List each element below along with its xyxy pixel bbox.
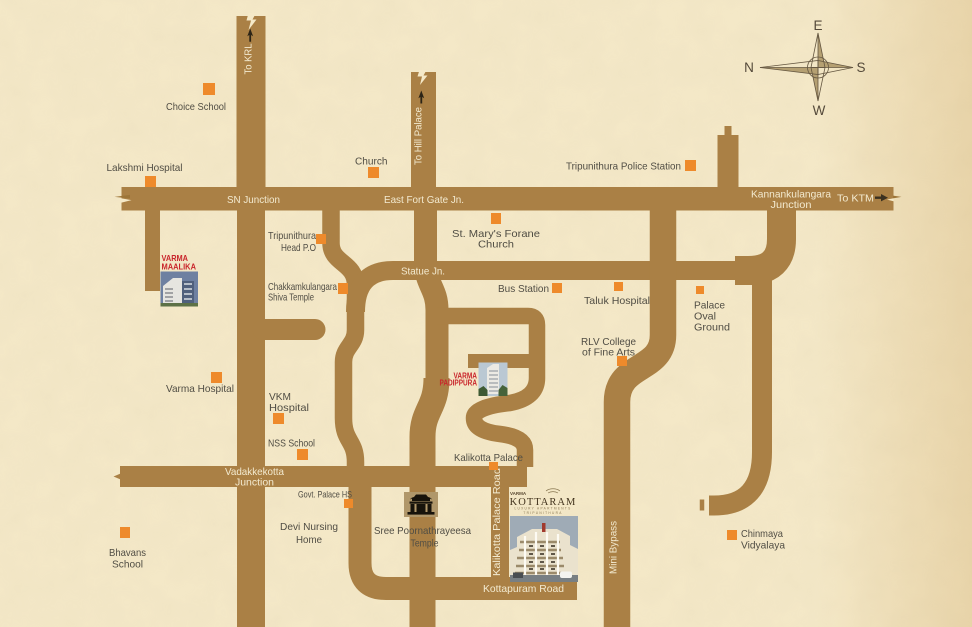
svg-text:Kalikotta Palace Road: Kalikotta Palace Road <box>491 468 503 576</box>
svg-text:Home: Home <box>296 534 322 546</box>
svg-text:Taluk Hospital: Taluk Hospital <box>584 295 650 307</box>
svg-text:of Fine Arts: of Fine Arts <box>582 347 635 359</box>
svg-text:Junction: Junction <box>235 477 274 489</box>
svg-text:Vidyalaya: Vidyalaya <box>741 540 785 552</box>
svg-text:Choice School: Choice School <box>166 101 226 113</box>
svg-text:Lakshmi Hospital: Lakshmi Hospital <box>107 162 183 174</box>
svg-text:To KRL: To KRL <box>243 43 255 74</box>
svg-text:East Fort Gate Jn.: East Fort Gate Jn. <box>384 194 464 206</box>
svg-text:SN Junction: SN Junction <box>227 194 280 206</box>
svg-text:VARMA: VARMA <box>510 491 527 496</box>
svg-text:LUXURY APARTMENTS: LUXURY APARTMENTS <box>514 507 571 511</box>
svg-text:Shiva Temple: Shiva Temple <box>268 292 314 304</box>
svg-text:TRIPUNITHURA: TRIPUNITHURA <box>523 511 562 515</box>
svg-text:Tripunithura: Tripunithura <box>268 230 316 242</box>
svg-text:Kalikotta Palace: Kalikotta Palace <box>454 452 523 464</box>
svg-text:NSS School: NSS School <box>268 438 315 450</box>
svg-text:Church: Church <box>478 239 514 251</box>
svg-text:Temple: Temple <box>411 538 439 550</box>
svg-text:Bhavans: Bhavans <box>109 547 146 559</box>
svg-text:PADIPPURA: PADIPPURA <box>440 377 478 387</box>
svg-text:Hospital: Hospital <box>269 402 309 414</box>
svg-text:To KTM: To KTM <box>837 193 874 205</box>
svg-text:Sree Poornathrayeesa: Sree Poornathrayeesa <box>374 525 471 537</box>
svg-text:MAALIKA: MAALIKA <box>162 262 197 272</box>
svg-text:Ground: Ground <box>694 322 730 334</box>
svg-text:Junction: Junction <box>771 199 812 211</box>
svg-text:Varma Hospital: Varma Hospital <box>166 383 234 395</box>
svg-text:Church: Church <box>355 156 388 168</box>
svg-text:Head P.O: Head P.O <box>281 242 316 254</box>
svg-text:Mini Bypass: Mini Bypass <box>608 521 620 574</box>
svg-text:Chinmaya: Chinmaya <box>741 528 783 540</box>
svg-text:Devi Nursing: Devi Nursing <box>280 521 338 533</box>
svg-text:Tripunithura Police Station: Tripunithura Police Station <box>566 161 681 173</box>
svg-text:Bus Station: Bus Station <box>498 283 549 295</box>
svg-text:To Hill Palace: To Hill Palace <box>414 107 425 165</box>
svg-text:School: School <box>112 559 143 571</box>
svg-text:Statue Jn.: Statue Jn. <box>401 266 445 278</box>
svg-text:Govt. Palace HS: Govt. Palace HS <box>298 490 352 501</box>
svg-text:Kottapuram Road: Kottapuram Road <box>483 583 564 595</box>
